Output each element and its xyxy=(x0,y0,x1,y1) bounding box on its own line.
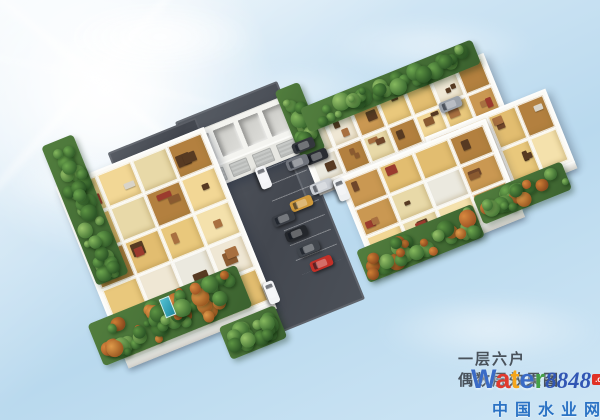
furniture xyxy=(403,200,411,207)
watermark-letter: t xyxy=(511,364,520,394)
furniture xyxy=(484,97,493,108)
furniture xyxy=(460,139,472,151)
site-plan-rendering: 一层六户 偶数层效果图 Water8848.com 中国水业网 xyxy=(0,0,600,420)
watermark-letter: a xyxy=(495,364,510,394)
car-roof xyxy=(315,181,328,192)
furniture xyxy=(341,127,350,137)
furniture xyxy=(534,103,545,112)
furniture xyxy=(225,246,240,260)
car-roof xyxy=(297,140,310,151)
watermark: Water8848.com 中国水业网 xyxy=(471,364,600,420)
furniture xyxy=(324,160,337,172)
car-roof xyxy=(295,198,308,209)
garage-bay xyxy=(213,123,244,157)
tree xyxy=(560,177,569,186)
furniture xyxy=(385,164,399,176)
furniture xyxy=(212,218,222,228)
furniture xyxy=(351,181,360,192)
furniture xyxy=(422,115,434,126)
car-roof xyxy=(291,157,304,168)
car-roof xyxy=(336,183,347,196)
watermark-brand: Water xyxy=(471,364,545,394)
furniture xyxy=(365,108,378,121)
car-roof xyxy=(315,258,328,269)
furniture xyxy=(395,128,405,139)
car-roof xyxy=(310,151,323,162)
watermark-letter: r xyxy=(535,364,546,394)
garage-door xyxy=(228,157,251,177)
watermark-letter: e xyxy=(520,364,535,394)
furniture xyxy=(123,180,135,190)
car-roof xyxy=(444,99,457,110)
watermark-site-name: 中国水业网 xyxy=(492,396,600,420)
car-roof xyxy=(258,171,269,184)
car-roof xyxy=(302,243,315,254)
car-roof xyxy=(266,286,277,299)
watermark-domain-suffix: .com xyxy=(592,374,600,385)
car-roof xyxy=(290,228,303,239)
furniture xyxy=(171,232,180,244)
watermark-number: 8848 xyxy=(545,368,591,393)
furniture xyxy=(201,182,211,191)
garage-bay xyxy=(237,113,268,147)
car-roof xyxy=(277,213,290,224)
watermark-letter: W xyxy=(471,364,495,394)
